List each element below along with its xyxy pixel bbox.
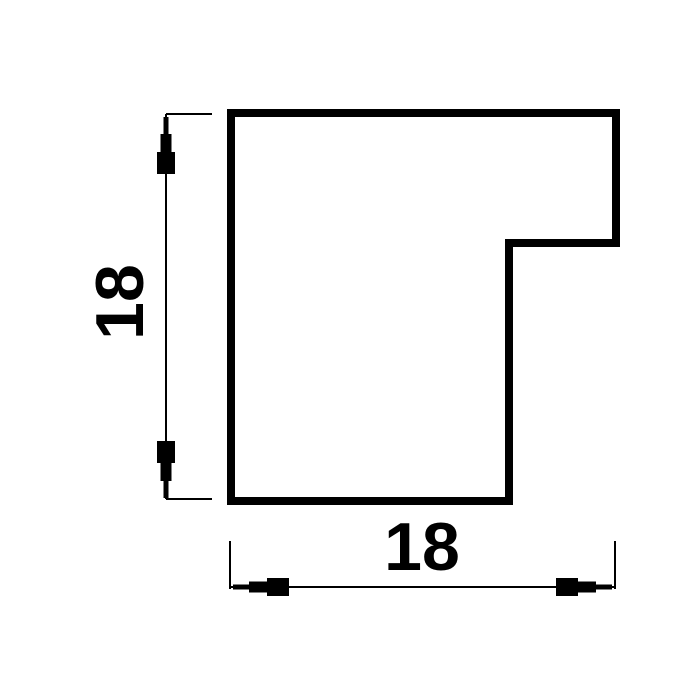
technical-drawing-canvas: 18 18	[0, 0, 700, 700]
arrow-up-icon	[157, 117, 175, 174]
profile-outline	[231, 113, 616, 501]
vertical-dimension	[157, 114, 212, 499]
arrow-right-icon	[556, 578, 612, 596]
arrow-down-icon	[157, 441, 175, 498]
height-dimension-label: 18	[86, 264, 154, 340]
arrow-left-icon	[233, 578, 289, 596]
width-dimension-label: 18	[384, 513, 460, 581]
profile-drawing	[0, 0, 700, 700]
